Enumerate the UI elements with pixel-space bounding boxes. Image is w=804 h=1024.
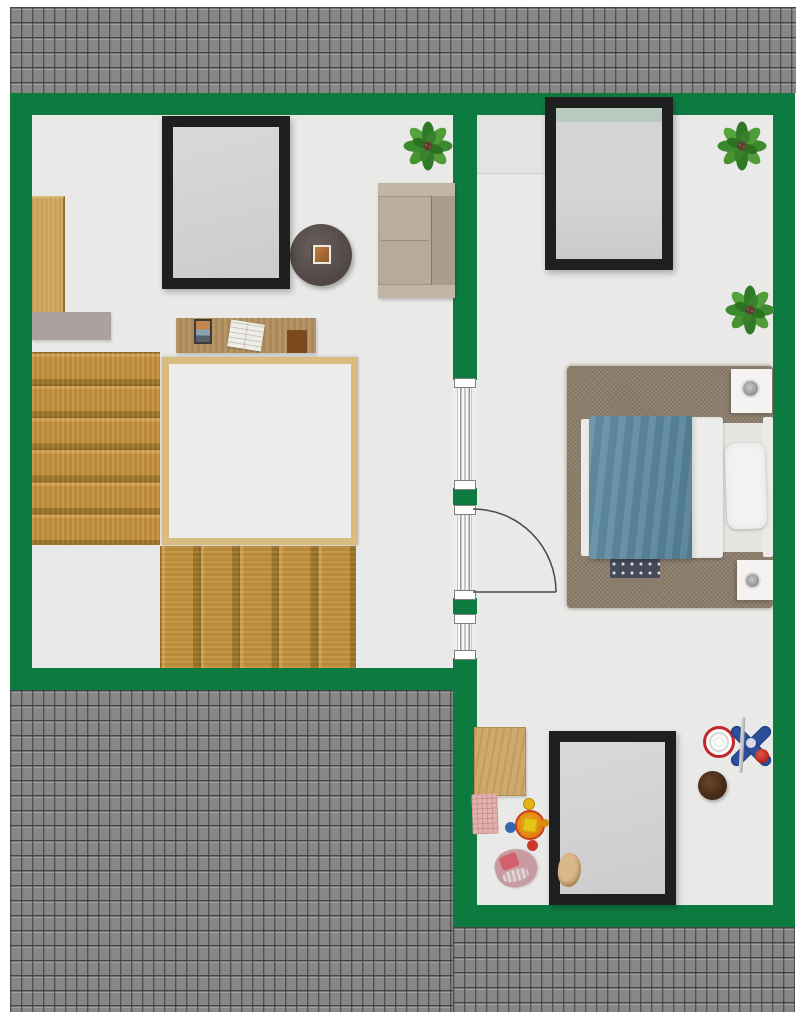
- glazing-frame-cap: [454, 505, 476, 515]
- desk-pad[interactable]: [287, 330, 307, 353]
- table-lamp-icon[interactable]: [744, 572, 761, 589]
- toy-ball[interactable]: [755, 749, 769, 763]
- baby-blanket[interactable]: [471, 794, 498, 835]
- pouf[interactable]: [698, 771, 727, 800]
- wooden-play-mat[interactable]: [474, 727, 526, 796]
- skylight-bedroom[interactable]: [545, 97, 673, 270]
- glazed-panel-1[interactable]: [457, 380, 472, 488]
- desk-photo[interactable]: [194, 319, 212, 344]
- glazing-frame-cap: [454, 378, 476, 388]
- stairwell-opening: [162, 357, 358, 545]
- roof-top: [10, 7, 796, 93]
- potted-plant-icon[interactable]: [724, 284, 776, 336]
- table-tray[interactable]: [311, 245, 331, 264]
- potted-plant-icon[interactable]: [402, 120, 454, 172]
- wall-bottom-landing: [10, 668, 476, 690]
- wall-partition-block-2: [453, 598, 477, 614]
- sofa-armrest-top: [378, 183, 455, 197]
- sideboard[interactable]: [32, 312, 111, 340]
- spinning-toy[interactable]: [503, 796, 551, 852]
- skylight-glass: [173, 127, 279, 278]
- spinning-toy-center: [522, 817, 538, 833]
- wall-bottom-bedroom: [453, 905, 795, 927]
- spinning-toy-knob: [505, 822, 516, 833]
- potted-plant-icon[interactable]: [716, 120, 768, 172]
- wall-left: [10, 93, 32, 690]
- wall-right: [773, 93, 795, 927]
- staircase-upper-flight[interactable]: [32, 352, 160, 545]
- sofa-seat-cushion: [380, 197, 430, 241]
- bed-pillow[interactable]: [725, 442, 768, 529]
- bed-duvet[interactable]: [589, 416, 693, 559]
- wall-top: [10, 93, 795, 115]
- hoop-base-hub: [746, 738, 756, 748]
- wall-partition-upper: [453, 93, 477, 380]
- spinning-toy-knob: [523, 798, 535, 810]
- sofa-armrest-bottom: [378, 284, 455, 298]
- floorplan: [0, 0, 804, 1024]
- hoop-net: [714, 737, 724, 747]
- bed-sheet: [692, 417, 723, 558]
- roof-bottom-right: [453, 927, 795, 1012]
- glazing-frame-cap: [454, 480, 476, 490]
- photo-image: [196, 321, 210, 342]
- sofa-seat-cushion: [380, 241, 430, 284]
- skylight-glass: [556, 108, 662, 259]
- glazed-panel-2[interactable]: [457, 505, 472, 598]
- wall-partition-block-1: [453, 488, 477, 505]
- spinning-toy-knob: [527, 840, 538, 851]
- spinning-toy-knob: [541, 819, 549, 827]
- glazing-frame-cap: [454, 650, 476, 660]
- sofa-backrest: [431, 196, 455, 285]
- skylight-landing[interactable]: [162, 116, 290, 289]
- open-book[interactable]: [227, 320, 265, 352]
- roof-bottom-left: [10, 690, 453, 1012]
- sofa[interactable]: [378, 183, 455, 298]
- table-lamp-icon[interactable]: [741, 379, 760, 398]
- glazing-frame-cap: [454, 614, 476, 624]
- glazing-frame-cap: [454, 590, 476, 600]
- wardrobe[interactable]: [32, 196, 65, 325]
- tray-picture: [315, 247, 329, 262]
- staircase-lower-flight[interactable]: [160, 546, 356, 668]
